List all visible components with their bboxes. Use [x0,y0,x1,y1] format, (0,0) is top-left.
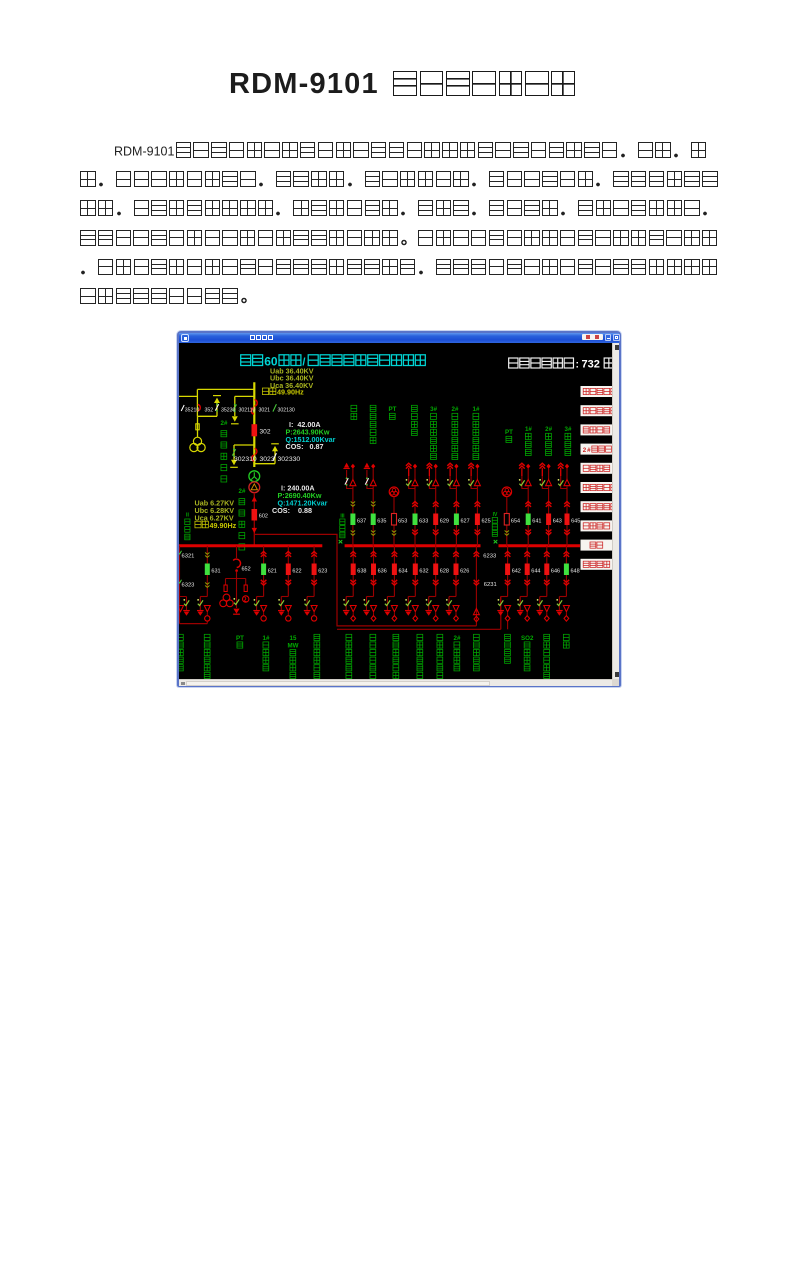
svg-text:622: 622 [292,569,301,575]
svg-text:621: 621 [268,569,277,575]
svg-text:302130: 302130 [278,408,295,414]
svg-text:648: 648 [571,569,580,575]
svg-text:629: 629 [440,519,449,525]
svg-text:633: 633 [419,519,428,525]
svg-text:632: 632 [419,569,428,575]
svg-text:6231: 6231 [484,582,497,588]
svg-text:SO2: SO2 [521,635,534,642]
svg-text::: : [576,359,580,371]
svg-text:PT: PT [388,406,396,413]
svg-text:15: 15 [290,635,297,642]
svg-text:645: 645 [571,519,580,525]
svg-text:3023: 3023 [260,456,275,463]
svg-text:6233: 6233 [483,554,496,560]
svg-text:652: 652 [242,566,251,572]
svg-text:PT: PT [236,635,244,642]
svg-text:636: 636 [378,569,387,575]
svg-text:1#: 1# [473,406,480,413]
svg-text:635: 635 [377,519,386,525]
svg-text:641: 641 [532,519,541,525]
svg-text:COS: 0.87: COS: 0.87 [286,442,324,451]
svg-text:626: 626 [460,569,469,575]
svg-text:644: 644 [531,569,540,575]
svg-text:35230: 35230 [221,408,236,414]
svg-text:COS: 0.88: COS: 0.88 [272,506,312,515]
svg-text:2#: 2# [545,426,552,433]
svg-text:302330: 302330 [278,456,301,463]
svg-text:631: 631 [211,569,220,575]
svg-text:642: 642 [512,569,521,575]
svg-text:#: # [587,447,591,454]
svg-text:2#: 2# [452,406,459,413]
svg-text:732: 732 [582,359,600,371]
svg-text:302110: 302110 [239,408,256,414]
svg-text:PT: PT [505,429,513,436]
svg-text:1#: 1# [525,426,532,433]
svg-text:623: 623 [318,569,327,575]
svg-text:3#: 3# [565,426,572,433]
svg-text:654: 654 [511,519,520,525]
svg-text:1#: 1# [263,635,270,642]
svg-text:3#: 3# [430,406,437,413]
svg-text:352: 352 [205,408,214,414]
svg-text:627: 627 [461,519,470,525]
svg-text:643: 643 [553,519,562,525]
svg-text:2#: 2# [221,420,228,427]
svg-text:MW: MW [288,643,299,650]
svg-text:III: III [340,514,345,520]
svg-text:637: 637 [357,519,366,525]
svg-text:6321: 6321 [182,554,195,560]
svg-text:II: II [186,513,189,519]
svg-text:653: 653 [398,519,407,525]
svg-text:6323: 6323 [182,583,195,589]
svg-text:634: 634 [399,569,408,575]
svg-text:646: 646 [551,569,560,575]
svg-text:IV: IV [493,512,498,518]
svg-text:638: 638 [357,569,366,575]
svg-text:2#: 2# [239,488,246,495]
svg-text:3021: 3021 [259,408,271,414]
svg-text:2#: 2# [454,635,461,642]
svg-text:49.90Hz: 49.90Hz [210,521,237,530]
svg-text:49.90Hz: 49.90Hz [277,388,304,397]
svg-text:625: 625 [482,519,491,525]
svg-text:302: 302 [260,429,271,436]
svg-text:628: 628 [440,569,449,575]
svg-text:302310: 302310 [234,456,257,463]
svg-text:602: 602 [259,514,268,520]
svg-text:35210: 35210 [185,408,200,414]
